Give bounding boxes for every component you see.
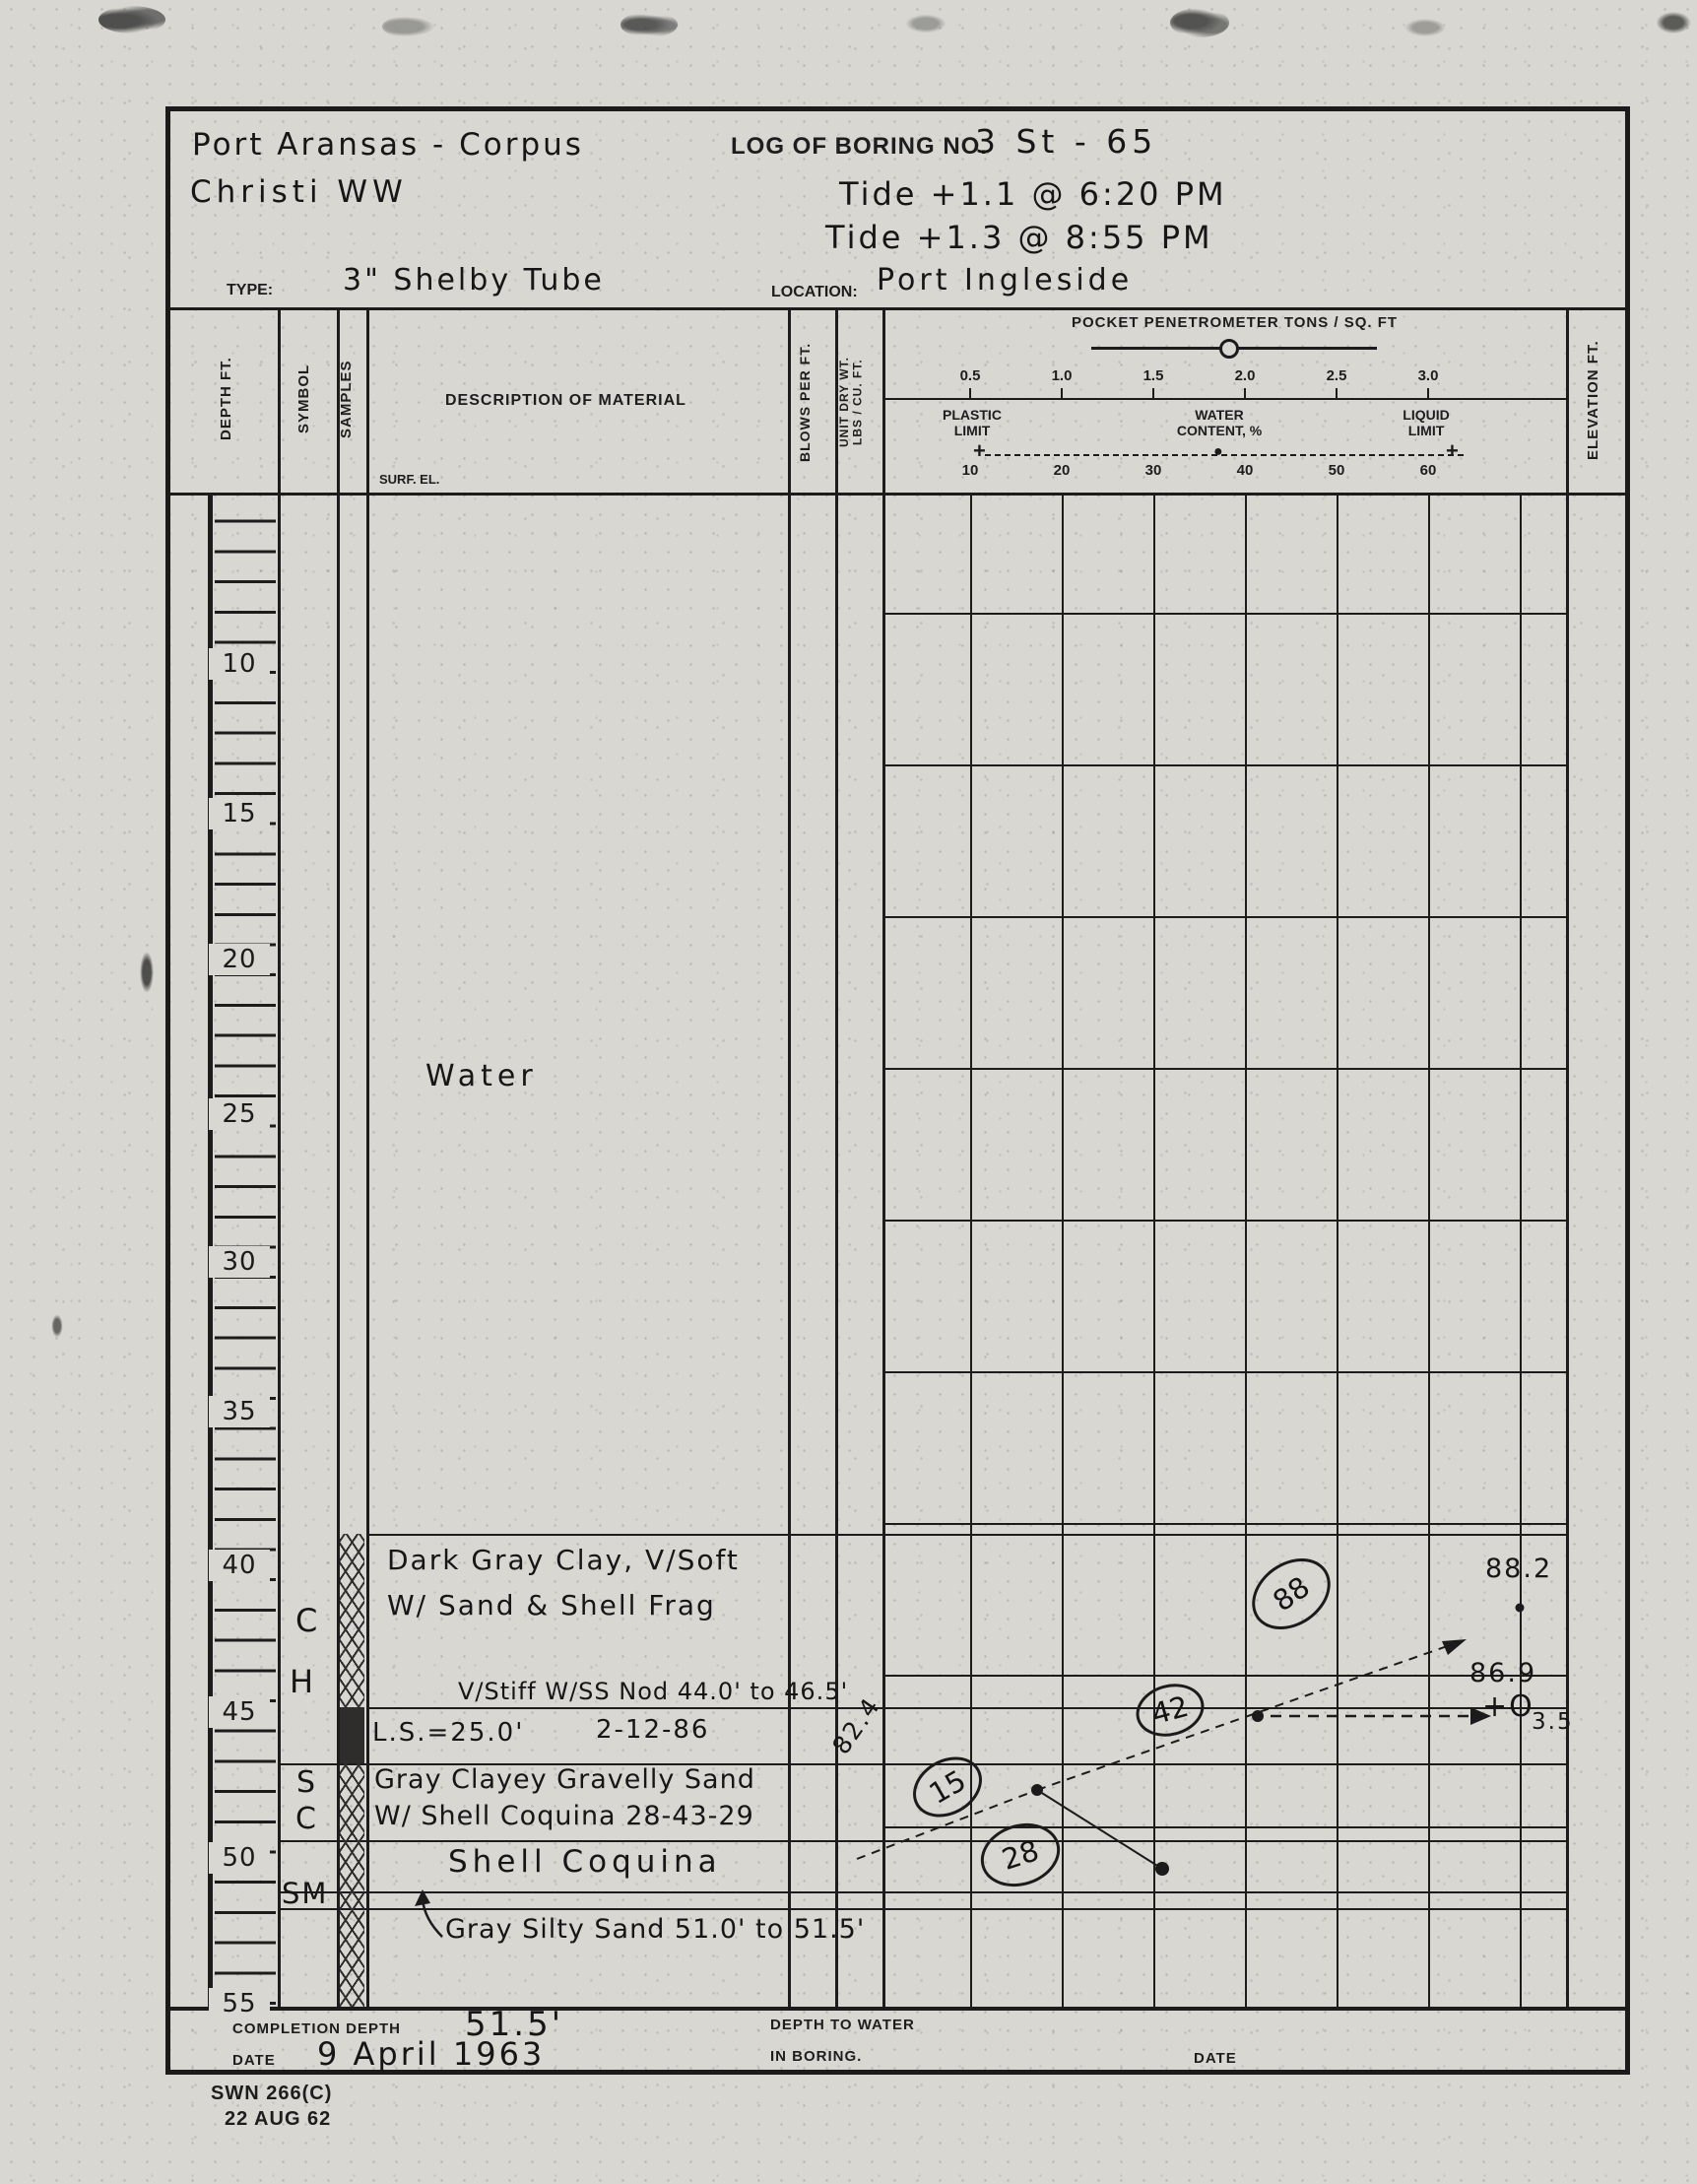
chart-gridline-h	[884, 1523, 1566, 1525]
penetrometer-marker-icon	[1219, 339, 1239, 359]
circled-value-text: 42	[1148, 1689, 1192, 1731]
wc-scale-value: 50	[1315, 463, 1358, 480]
depth-label: 35	[209, 1396, 270, 1427]
soil-symbol: C	[295, 1803, 318, 1836]
layer3-description: Shell Coquina	[448, 1845, 722, 1880]
circled-value-text: 28	[998, 1833, 1043, 1877]
sample-interval-hatch	[340, 1534, 364, 2007]
depth-label: 25	[209, 1098, 270, 1130]
chart-gridline-v	[1062, 493, 1064, 2007]
form-number-stamp: SWN 266(C)	[211, 2083, 332, 2104]
water-content-marker-icon: ●	[1213, 443, 1223, 461]
description-column-header: DESCRIPTION OF MATERIAL	[445, 392, 686, 410]
pen-scale-value: 2.5	[1315, 368, 1358, 385]
surf-el-label: SURF. EL.	[379, 473, 439, 488]
unit-dry-wt-line1: UNIT DRY WT.	[838, 321, 851, 483]
scan-artifact	[620, 12, 678, 37]
table-top-line	[169, 307, 1627, 310]
liquid-limit-offscale-marker: +O	[1482, 1690, 1534, 1724]
depth-label: 55	[209, 1988, 270, 2019]
layer4-note: Gray Silty Sand 51.0' to 51.5'	[445, 1915, 865, 1945]
pen-scale-baseline	[884, 398, 1566, 400]
water-date-label: DATE	[1194, 2051, 1237, 2068]
header-bottom-line	[169, 493, 1627, 496]
pen-scale-value: 2.0	[1223, 368, 1267, 385]
column-line	[1566, 307, 1569, 2007]
chart-gridline-v	[1520, 493, 1522, 2007]
tide-note-2: Tide +1.3 @ 8:55 PM	[825, 221, 1213, 256]
layer1-description-line2: W/ Sand & Shell Frag	[387, 1590, 716, 1621]
layer-boundary-line	[280, 1891, 1566, 1893]
layer-boundary-line	[368, 1707, 1566, 1709]
layer-boundary-line	[280, 1840, 1566, 1842]
plot-annotation-88-2: 88.2	[1485, 1555, 1552, 1584]
depth-label: 20	[209, 944, 270, 975]
layer2-description-line1: Gray Clayey Gravelly Sand	[374, 1765, 755, 1795]
liquid-limit-offscale-value: 3.5	[1532, 1710, 1574, 1736]
project-title-line1: Port Aransas - Corpus	[192, 128, 584, 163]
chart-gridline-h	[884, 916, 1566, 918]
layer1-date-note: 2-12-86	[596, 1716, 709, 1745]
scan-artifact	[140, 952, 154, 993]
scan-artifact	[51, 1314, 63, 1338]
column-line	[788, 307, 791, 2007]
wc-scale-value: 60	[1406, 463, 1450, 480]
type-value: 3" Shelby Tube	[343, 264, 605, 298]
scan-artifact	[1403, 18, 1448, 37]
symbol-column-header: SYMBOL	[296, 325, 313, 473]
samples-column-header: SAMPLES	[339, 325, 356, 473]
depth-label: 45	[209, 1696, 270, 1728]
layer-boundary-line	[368, 1534, 1566, 1536]
soil-symbol: C	[295, 1604, 319, 1639]
scan-artifact	[382, 16, 437, 37]
wc-scale-value: 40	[1223, 463, 1267, 480]
soil-symbol: H	[290, 1665, 315, 1700]
form-date-stamp: 22 AUG 62	[225, 2108, 331, 2130]
pen-scale-value: 0.5	[948, 368, 992, 385]
depth-column-header: DEPTH FT.	[219, 325, 235, 473]
project-title-line2: Christi WW	[190, 175, 408, 210]
depth-label: 15	[209, 798, 270, 829]
layer1-description-line1: Dark Gray Clay, V/Soft	[387, 1545, 740, 1575]
chart-gridline-h	[884, 1068, 1566, 1070]
depth-label: 50	[209, 1842, 270, 1874]
water-note: Water	[425, 1060, 538, 1093]
scan-artifact	[98, 6, 165, 33]
pen-scale-value: 3.0	[1406, 368, 1450, 385]
plot-annotation-86-9: 86.9	[1469, 1659, 1536, 1688]
chart-gridline-v	[1337, 493, 1338, 2007]
layer1-ls-note: L.S.=25.0'	[372, 1719, 524, 1748]
depth-label: 10	[209, 648, 270, 680]
chart-gridline-h	[884, 1220, 1566, 1222]
chart-gridline-h	[884, 1675, 1566, 1677]
tide-note-1: Tide +1.1 @ 6:20 PM	[839, 177, 1227, 213]
layer2-description-line2: W/ Shell Coquina 28-43-29	[374, 1802, 754, 1831]
chart-gridline-v	[1428, 493, 1430, 2007]
location-value: Port Ingleside	[877, 264, 1133, 298]
wc-scale-value: 30	[1132, 463, 1175, 480]
limits-legend-line	[985, 454, 1464, 456]
sample-interval-solid	[340, 1707, 364, 1763]
type-label: TYPE:	[227, 282, 273, 299]
chart-gridline-v	[1153, 493, 1155, 2007]
soil-symbol: S	[296, 1766, 317, 1800]
wc-scale-value: 20	[1040, 463, 1083, 480]
scan-artifact	[1657, 10, 1694, 35]
chart-gridline-v	[1245, 493, 1247, 2007]
penetrometer-title: POCKET PENETROMETER TONS / SQ. FT	[1072, 315, 1398, 332]
log-of-boring-label: LOG OF BORING NO.	[731, 134, 988, 161]
depth-label: 30	[209, 1246, 270, 1278]
elevation-column-header: ELEVATION FT.	[1586, 321, 1602, 479]
chart-gridline-h	[884, 1826, 1566, 1828]
liquid-limit-label: LIQUID LIMIT	[1389, 408, 1464, 438]
depth-to-water-label-line2: IN BORING.	[770, 2049, 862, 2066]
chart-gridline-h	[884, 764, 1566, 766]
depth-label: 40	[209, 1550, 270, 1581]
water-content-label: WATER CONTENT, %	[1164, 408, 1274, 438]
plastic-limit-marker-icon: +	[973, 439, 986, 464]
column-line	[366, 307, 369, 2007]
location-label: LOCATION:	[771, 284, 858, 301]
pen-scale-value: 1.0	[1040, 368, 1083, 385]
wc-scale-value: 10	[948, 463, 992, 480]
scanned-boring-log-page: Port Aransas - Corpus Christi WW LOG OF …	[0, 0, 1697, 2184]
layer-boundary-line	[280, 1908, 1566, 1910]
circled-value-text: 88	[1267, 1569, 1316, 1618]
table-bottom-line	[169, 2007, 1627, 2011]
blows-column-header: BLOWS PER FT.	[798, 321, 814, 483]
chart-gridline-h	[884, 1371, 1566, 1373]
depth-to-water-label-line1: DEPTH TO WATER	[770, 2018, 915, 2034]
unit-dry-wt-column-header: UNIT DRY WT. LBS / CU. FT.	[838, 321, 865, 483]
pen-scale-value: 1.5	[1132, 368, 1175, 385]
column-line	[835, 307, 838, 2007]
column-line	[882, 307, 885, 2007]
unit-dry-wt-line2: LBS / CU. FT.	[851, 321, 864, 483]
liquid-limit-marker-icon: +	[1446, 439, 1459, 464]
circled-value-text: 15	[924, 1763, 972, 1811]
boring-number: 3 St - 65	[975, 124, 1157, 161]
soil-symbol: SM	[282, 1878, 328, 1909]
scan-artifact	[1170, 8, 1229, 37]
scan-artifact	[904, 14, 947, 33]
plastic-limit-label: PLASTIC LIMIT	[930, 408, 1014, 438]
column-line	[278, 307, 281, 2007]
chart-gridline-h	[884, 613, 1566, 615]
completion-date-label: DATE	[232, 2053, 276, 2070]
completion-date-value: 9 April 1963	[317, 2037, 545, 2073]
layer1-note: V/Stiff W/SS Nod 44.0' to 46.5'	[458, 1679, 848, 1705]
